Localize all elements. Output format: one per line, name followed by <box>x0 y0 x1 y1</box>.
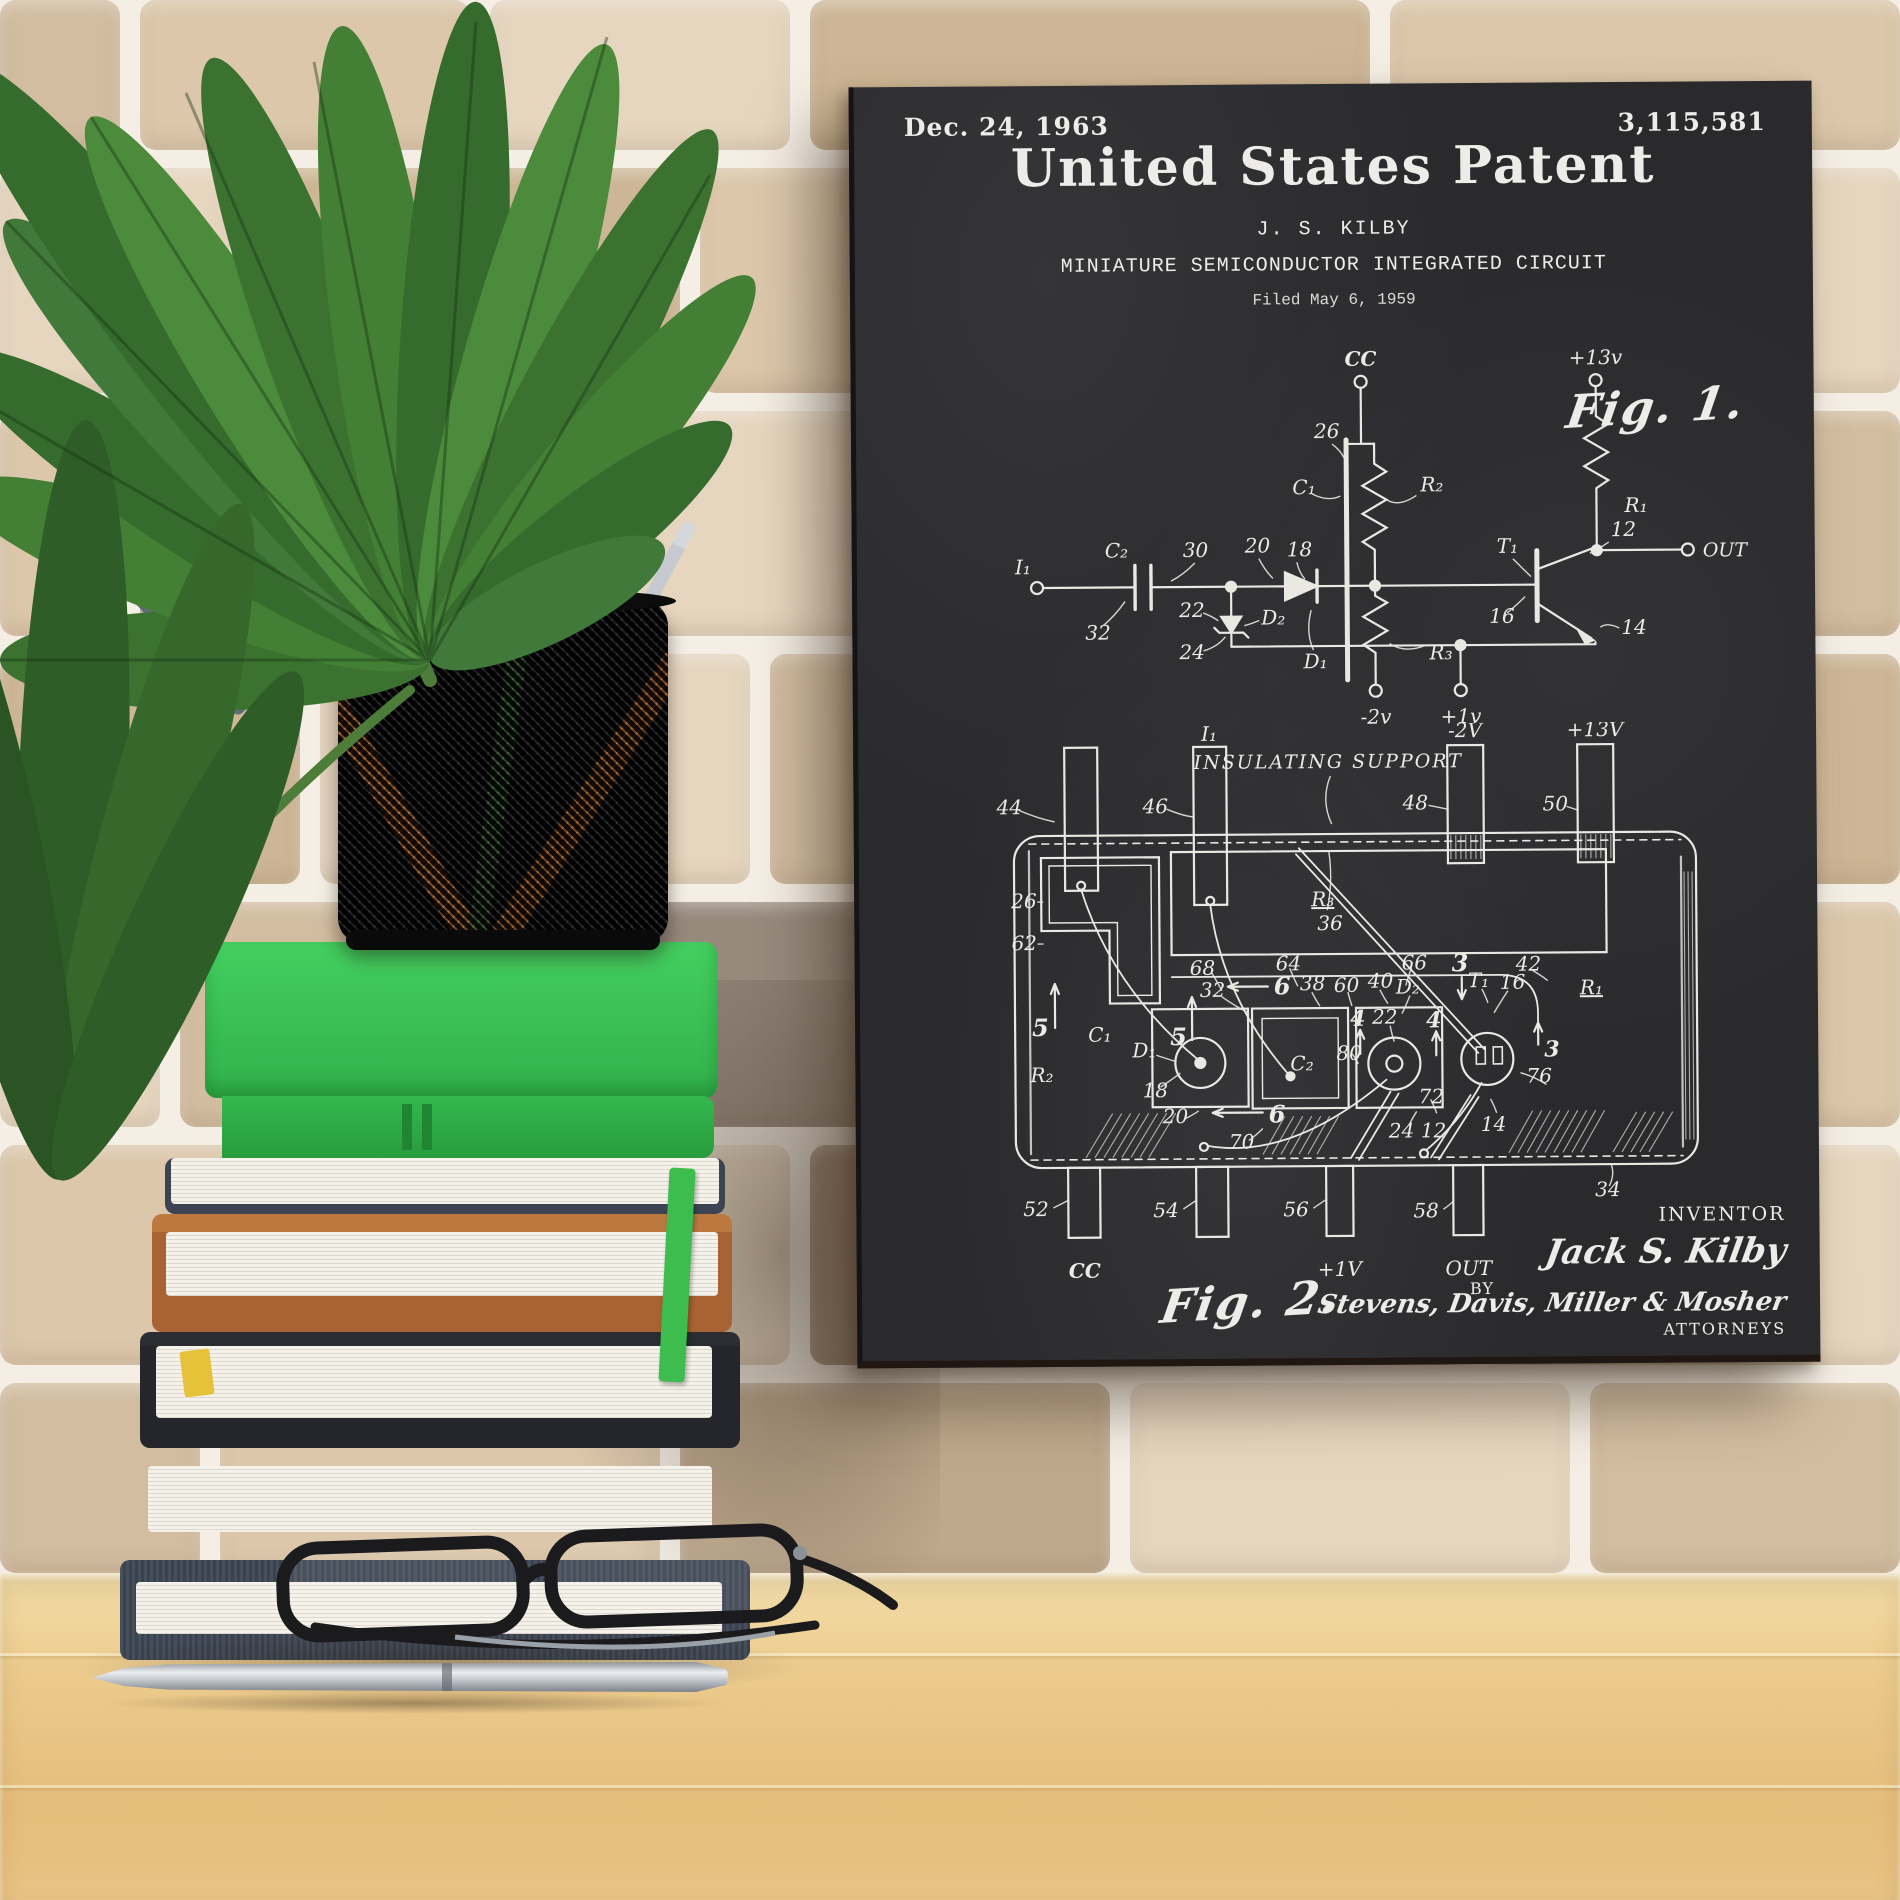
brick <box>1130 1383 1570 1573</box>
svg-text:26: 26 <box>1010 889 1037 913</box>
svg-text:22: 22 <box>1178 598 1205 622</box>
scene: Dec. 24, 1963 3,115,581 United States Pa… <box>0 0 1900 1900</box>
patent-chalkboard-print: Dec. 24, 1963 3,115,581 United States Pa… <box>849 81 1821 1369</box>
inventor-label: INVENTOR <box>1658 1203 1785 1226</box>
svg-text:R₃: R₃ <box>1310 887 1334 911</box>
svg-text:14: 14 <box>1481 1112 1507 1136</box>
svg-text:66: 66 <box>1402 950 1428 974</box>
svg-text:72: 72 <box>1419 1084 1445 1108</box>
svg-text:24: 24 <box>1388 1118 1415 1142</box>
svg-text:60: 60 <box>1334 973 1360 997</box>
book-pages <box>156 1346 712 1418</box>
svg-text:4: 4 <box>1350 1006 1365 1032</box>
svg-text:38: 38 <box>1300 971 1326 995</box>
desk-plank-seam <box>0 1785 1900 1788</box>
notebook-elastic <box>422 1104 432 1150</box>
svg-text:56: 56 <box>1283 1197 1309 1221</box>
svg-text:32: 32 <box>1085 621 1111 645</box>
figure2-caption: Fig. 2. <box>1157 1269 1343 1333</box>
svg-text:C₁: C₁ <box>1088 1023 1111 1047</box>
svg-text:32: 32 <box>1200 978 1226 1002</box>
svg-text:CC: CC <box>1344 347 1376 371</box>
svg-text:C₁: C₁ <box>1292 475 1315 499</box>
brick <box>1590 1383 1900 1573</box>
svg-text:22: 22 <box>1371 1005 1398 1029</box>
svg-text:58: 58 <box>1413 1198 1439 1222</box>
svg-text:INSULATING SUPPORT: INSULATING SUPPORT <box>1193 750 1463 774</box>
attorneys-label: ATTORNEYS <box>1663 1319 1786 1339</box>
book-pages <box>166 1232 718 1296</box>
svg-text:46: 46 <box>1141 794 1168 818</box>
svg-text:R₁: R₁ <box>1623 493 1647 517</box>
svg-text:OUT: OUT <box>1445 1256 1493 1280</box>
svg-text:T₁: T₁ <box>1497 534 1519 558</box>
svg-text:18: 18 <box>1287 537 1313 561</box>
svg-text:D₁: D₁ <box>1131 1038 1156 1062</box>
notebook-elastic <box>402 1104 412 1150</box>
svg-text:12: 12 <box>1421 1118 1447 1142</box>
svg-text:D₂: D₂ <box>1260 605 1285 629</box>
svg-text:R₂: R₂ <box>1029 1063 1053 1087</box>
book-pages <box>171 1158 719 1204</box>
svg-text:20: 20 <box>1162 1104 1189 1128</box>
svg-text:68: 68 <box>1190 956 1216 980</box>
svg-text:5: 5 <box>1170 1022 1187 1051</box>
svg-text:62: 62 <box>1011 931 1037 955</box>
patent-inventor-initials: J. S. KILBY <box>854 215 1812 245</box>
svg-text:36: 36 <box>1317 911 1343 935</box>
svg-text:D₂: D₂ <box>1395 974 1420 998</box>
svg-text:34: 34 <box>1595 1177 1621 1201</box>
svg-text:80: 80 <box>1336 1041 1362 1065</box>
book-white-navy <box>165 1158 725 1214</box>
green-notebook <box>222 1096 714 1158</box>
attorneys-signature: Stevens, Davis, Miller & Mosher <box>1316 1287 1789 1320</box>
pen-ring <box>442 1662 452 1692</box>
patent-filed-date: Filed May 6, 1959 <box>855 288 1813 313</box>
svg-text:24: 24 <box>1178 640 1205 664</box>
figure2-labels: I₁ -2V +13V 44 46 48 50 INSULATING SUPPO… <box>995 721 1630 1283</box>
svg-text:3: 3 <box>1544 1036 1559 1062</box>
svg-text:70: 70 <box>1229 1130 1255 1154</box>
svg-text:44: 44 <box>995 795 1022 819</box>
svg-text:C₂: C₂ <box>1290 1051 1313 1075</box>
svg-text:6: 6 <box>1274 971 1291 1000</box>
silver-pen <box>92 1662 728 1692</box>
svg-text:6: 6 <box>1269 1099 1286 1128</box>
svg-text:50: 50 <box>1542 791 1568 815</box>
svg-text:I₁: I₁ <box>1014 555 1031 579</box>
svg-text:4: 4 <box>1426 1007 1441 1033</box>
pen-shadow <box>100 1692 730 1714</box>
svg-text:D₁: D₁ <box>1302 649 1327 673</box>
svg-text:R₂: R₂ <box>1419 472 1443 496</box>
svg-text:T₁: T₁ <box>1468 968 1490 992</box>
svg-text:40: 40 <box>1367 969 1394 993</box>
svg-text:30: 30 <box>1183 538 1209 562</box>
svg-text:-2V: -2V <box>1448 721 1485 742</box>
svg-text:54: 54 <box>1153 1198 1179 1222</box>
eyeglasses <box>255 1505 915 1680</box>
svg-text:5: 5 <box>1032 1013 1049 1042</box>
svg-text:R₃: R₃ <box>1428 640 1452 664</box>
svg-text:18: 18 <box>1142 1078 1168 1102</box>
book-black <box>140 1332 740 1448</box>
figure1-caption: Fig. 1. <box>1563 375 1749 439</box>
patent-title: United States Patent <box>854 133 1812 201</box>
svg-text:48: 48 <box>1401 790 1428 814</box>
yellow-bookmark <box>179 1348 214 1397</box>
svg-text:76: 76 <box>1526 1063 1552 1087</box>
svg-text:C₂: C₂ <box>1105 538 1128 562</box>
svg-text:OUT: OUT <box>1703 539 1749 561</box>
inventor-signature: Jack S. Kilby <box>1542 1231 1789 1273</box>
svg-text:52: 52 <box>1023 1197 1049 1221</box>
svg-text:+13v: +13v <box>1569 345 1623 369</box>
svg-text:14: 14 <box>1621 615 1647 639</box>
svg-text:16: 16 <box>1489 604 1515 628</box>
svg-text:12: 12 <box>1611 517 1637 541</box>
svg-text:+13V: +13V <box>1567 721 1626 741</box>
svg-text:16: 16 <box>1500 970 1526 994</box>
book-caramel <box>152 1214 732 1332</box>
svg-text:3: 3 <box>1452 948 1469 977</box>
svg-text:26: 26 <box>1313 419 1340 443</box>
svg-text:CC: CC <box>1069 1259 1101 1283</box>
svg-text:R₁: R₁ <box>1579 975 1603 999</box>
patent-subtitle: MINIATURE SEMICONDUCTOR INTEGRATED CIRCU… <box>855 251 1813 281</box>
svg-text:20: 20 <box>1244 533 1271 557</box>
svg-text:I₁: I₁ <box>1200 722 1217 746</box>
